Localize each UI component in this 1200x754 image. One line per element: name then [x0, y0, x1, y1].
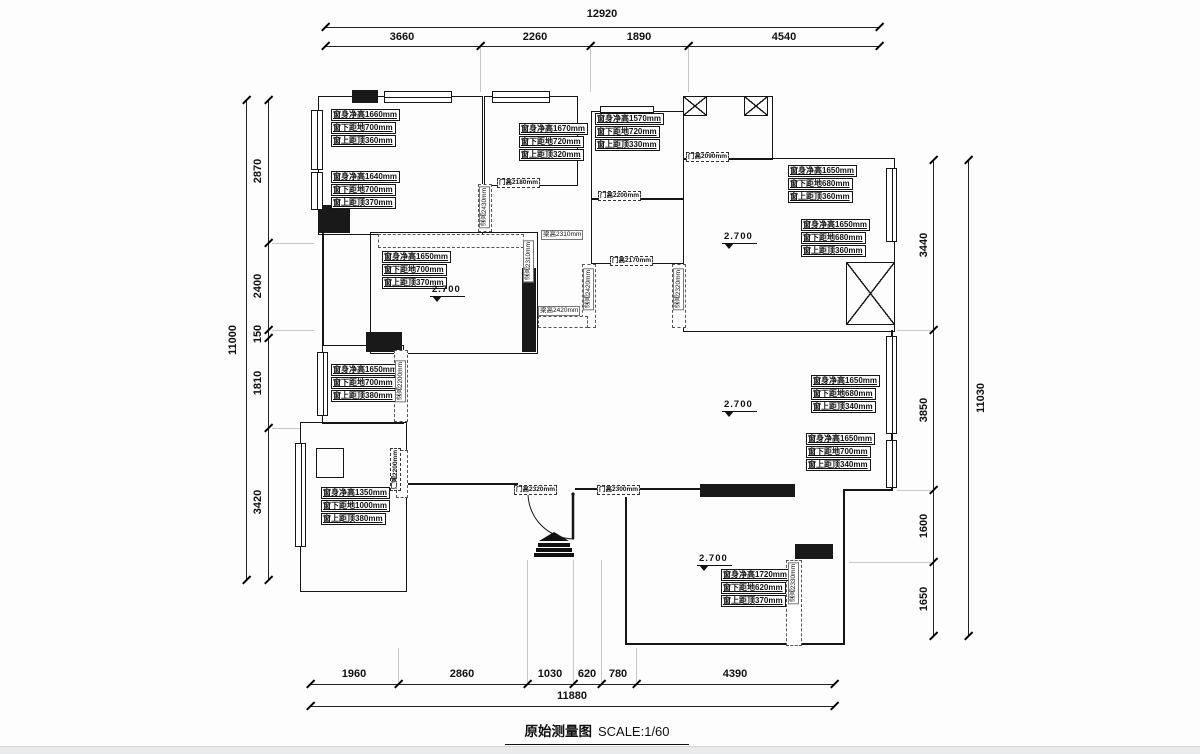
window-label: 窗上距顶320mm	[519, 149, 584, 161]
dim-top-seg4: 4540	[772, 31, 796, 43]
extension-line	[590, 48, 591, 92]
wall	[322, 233, 324, 345]
window-label: 窗下距地680mm	[788, 178, 853, 190]
window-label: 窗下距地720mm	[595, 126, 660, 138]
door-label: 门高2090mm	[686, 152, 729, 162]
dim-top-total: 12920	[587, 8, 618, 20]
window-strip	[492, 91, 550, 103]
drawing-scale: SCALE:1/60	[598, 724, 670, 739]
extension-line	[398, 648, 399, 682]
beam-label: 梁高2420mm	[538, 306, 580, 316]
extension-line	[527, 560, 528, 682]
window-label: 窗身净高1660mm	[331, 109, 400, 121]
wall	[575, 488, 598, 490]
extension-line	[272, 330, 314, 331]
beam-label-vertical: 梁高2420mm	[583, 268, 594, 310]
extension-line	[272, 428, 300, 429]
window-label: 窗身净高1570mm	[595, 113, 664, 125]
dim-left-seg4: 1810	[252, 371, 264, 395]
window-label: 窗上距顶340mm	[811, 401, 876, 413]
window-strip	[311, 110, 323, 170]
drawing-title-text: 原始测量图	[524, 724, 592, 739]
dim-left-seg1: 2870	[252, 159, 264, 183]
extension-line	[480, 48, 481, 92]
dim-bottom-seg2: 2860	[450, 668, 474, 680]
door-label: 门高2300mm	[597, 485, 640, 495]
wall	[640, 488, 700, 490]
window-strip	[886, 440, 897, 488]
extension-line	[636, 648, 637, 682]
wall-bottom-room-left	[625, 497, 627, 645]
window-label: 窗下距地680mm	[811, 388, 876, 400]
window-strip	[886, 168, 897, 242]
window-label: 窗身净高1670mm	[519, 123, 588, 135]
page-edge	[0, 746, 1200, 754]
extension-line	[573, 560, 574, 682]
column-x	[744, 96, 768, 116]
dim-line	[268, 100, 269, 580]
window-label-group: 窗身净高1640mm 窗下距地700mm 窗上距顶370mm	[331, 170, 400, 209]
dim-line	[325, 46, 880, 47]
wall-bottom-room-right	[843, 489, 845, 645]
beam-label: 梁高2310mm	[541, 230, 583, 240]
window-label: 窗下距地1000mm	[321, 500, 390, 512]
window-strip	[311, 172, 323, 210]
wall	[845, 489, 893, 491]
beam-label-vertical: 梁高2320mm	[673, 268, 684, 310]
dim-bottom-seg1: 1960	[342, 668, 366, 680]
dim-bottom-seg3: 1030	[538, 668, 562, 680]
dim-right-seg2: 3850	[918, 398, 930, 422]
window-label: 窗身净高1650mm	[788, 165, 857, 177]
window-label: 窗上距顶360mm	[801, 245, 866, 257]
window-strip	[886, 336, 897, 434]
wall	[402, 483, 518, 485]
dim-line	[325, 27, 880, 28]
room-center-small	[591, 199, 684, 264]
beam-label-vertical: 梁高2310mm	[523, 240, 534, 282]
floor-plan-drawing: 12920 3660 2260 1890 4540 11000 2870 240…	[0, 0, 1200, 754]
extension-line	[897, 490, 931, 491]
drawing-title: 原始测量图SCALE:1/60	[505, 720, 689, 745]
window-label: 窗身净高1650mm	[382, 251, 451, 263]
window-label: 窗下距地720mm	[519, 136, 584, 148]
window-label: 窗上距顶360mm	[788, 191, 853, 203]
wall-solid	[795, 544, 833, 559]
extension-line	[688, 48, 689, 92]
window-label: 窗下距地700mm	[382, 264, 447, 276]
window-label: 窗上距顶370mm	[721, 595, 786, 607]
window-strip	[384, 91, 452, 103]
window-label: 窗上距顶360mm	[331, 135, 396, 147]
level-mark: 2.700	[722, 231, 757, 244]
door-label: 门高2200mm	[598, 191, 641, 201]
dim-bottom-seg6: 4390	[723, 668, 747, 680]
dim-line	[968, 160, 969, 636]
level-mark: 2.700	[697, 553, 732, 566]
window-label-group: 窗身净高1720mm 窗下距地620mm 窗上距顶370mm	[721, 568, 790, 607]
window-label: 窗身净高1350mm	[321, 487, 390, 499]
dim-top-seg2: 2260	[523, 31, 547, 43]
window-label: 窗身净高1650mm	[331, 364, 400, 376]
store-cabinet	[316, 448, 344, 478]
level-mark: 2.700	[722, 399, 757, 412]
extension-line	[897, 330, 931, 331]
window-label: 窗身净高1650mm	[811, 375, 880, 387]
window-label-group: 窗身净高1570mm 窗下距地720mm 窗上距顶330mm	[595, 112, 664, 151]
wall-hatch	[352, 90, 378, 103]
dim-left-seg2: 2400	[252, 274, 264, 298]
door-label: 门高2170mm	[610, 256, 653, 266]
window-strip	[317, 352, 328, 416]
window-label-group: 窗身净高1670mm 窗下距地720mm 窗上距顶320mm	[519, 122, 588, 161]
window-label: 窗下距地700mm	[331, 122, 396, 134]
wall-solid	[700, 484, 795, 497]
entry-steps-icon	[538, 543, 570, 547]
window-label: 窗上距顶340mm	[806, 459, 871, 471]
dim-right-seg4: 1650	[918, 587, 930, 611]
window-label: 窗下距地700mm	[806, 446, 871, 458]
beam-label-vertical: 梁高2200mm	[395, 360, 406, 402]
window-label: 窗下距地680mm	[801, 232, 866, 244]
wall-bottom-room-bottom	[625, 643, 845, 645]
door-label-vertical: 门高2200mm	[390, 448, 401, 491]
dim-top-seg3: 1890	[627, 31, 651, 43]
window-label: 窗上距顶380mm	[331, 390, 396, 402]
dim-left-total: 11000	[227, 325, 239, 355]
window-label: 窗身净高1640mm	[331, 171, 400, 183]
window-label: 窗上距顶380mm	[321, 513, 386, 525]
window-label: 窗身净高1650mm	[806, 433, 875, 445]
extension-line	[849, 562, 931, 563]
door-label: 门高2320mm	[514, 485, 557, 495]
window-label-group: 窗身净高1650mm 窗下距地680mm 窗上距顶360mm	[801, 218, 870, 257]
extension-line	[601, 560, 602, 682]
window-label-group: 窗身净高1660mm 窗下距地700mm 窗上距顶360mm	[331, 108, 400, 147]
dim-right-seg1: 3440	[918, 233, 930, 257]
dim-line	[310, 706, 834, 707]
dim-line	[246, 100, 247, 580]
dim-line	[933, 160, 934, 636]
window-label-group: 窗身净高1350mm 窗下距地1000mm 窗上距顶380mm	[321, 486, 390, 525]
window-label: 窗下距地700mm	[331, 184, 396, 196]
window-label-group: 窗身净高1650mm 窗下距地700mm 窗上距顶340mm	[806, 432, 875, 471]
dim-left-seg3: 150	[252, 325, 264, 343]
entry-steps-icon	[536, 548, 572, 552]
level-mark: 2.700	[430, 284, 465, 297]
dim-right-total: 11030	[975, 383, 987, 413]
window-label: 窗下距地620mm	[721, 582, 786, 594]
window-label-group: 窗身净高1650mm 窗下距地700mm 窗上距顶380mm	[331, 363, 400, 402]
window-strip	[295, 443, 306, 547]
extension-line	[272, 243, 314, 244]
beam-dashed	[378, 234, 524, 248]
entry-door-swing	[527, 492, 575, 540]
window-label: 窗上距顶370mm	[331, 197, 396, 209]
dim-right-seg3: 1600	[918, 514, 930, 538]
beam-dashed	[538, 316, 588, 328]
dim-top-seg1: 3660	[390, 31, 414, 43]
window-label: 窗上距顶330mm	[595, 139, 660, 151]
dim-bottom-total: 11880	[557, 690, 587, 702]
elevator-shaft	[846, 262, 895, 325]
column-x	[683, 96, 707, 116]
window-label-group: 窗身净高1650mm 窗下距地680mm 窗上距顶340mm	[811, 374, 880, 413]
dim-bottom-seg5: 780	[609, 668, 627, 680]
beam-label-vertical: 梁高2430mm	[479, 186, 490, 228]
wall-solid	[366, 332, 402, 352]
window-label: 窗身净高1720mm	[721, 569, 790, 581]
door-label: 门高2180mm	[497, 178, 540, 188]
beam-label-vertical: 梁高2330mm	[788, 562, 799, 604]
dim-bottom-seg4: 620	[578, 668, 596, 680]
entry-steps-icon	[534, 553, 574, 557]
dim-left-seg5: 3420	[252, 490, 264, 514]
window-label: 窗下距地700mm	[331, 377, 396, 389]
window-label-group: 窗身净高1650mm 窗下距地680mm 窗上距顶360mm	[788, 164, 857, 203]
window-label: 窗身净高1650mm	[801, 219, 870, 231]
